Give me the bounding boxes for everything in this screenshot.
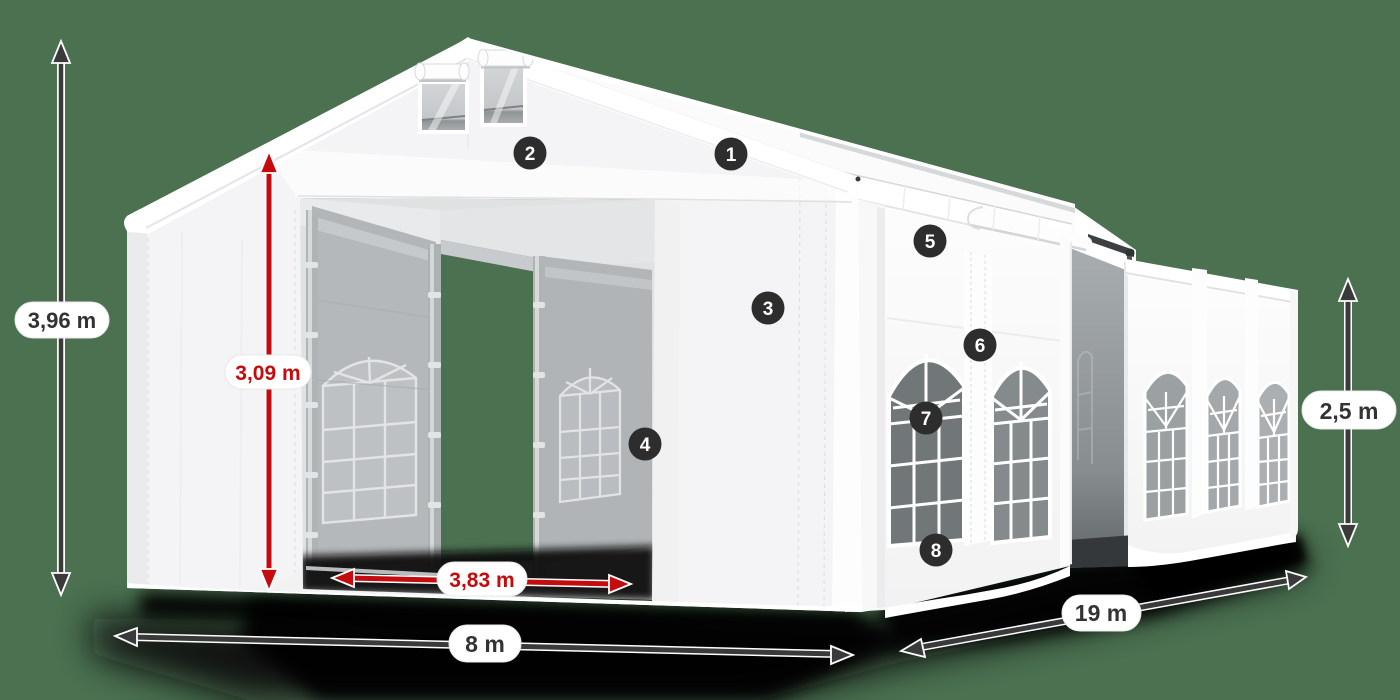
svg-text:8: 8 xyxy=(931,541,942,562)
svg-text:2: 2 xyxy=(525,144,536,165)
svg-text:2,5 m: 2,5 m xyxy=(1320,398,1379,424)
svg-text:3: 3 xyxy=(763,299,774,320)
svg-text:7: 7 xyxy=(921,409,932,430)
svg-text:3,96 m: 3,96 m xyxy=(28,308,97,333)
svg-text:3,83 m: 3,83 m xyxy=(449,569,514,592)
svg-text:5: 5 xyxy=(925,232,936,253)
svg-text:3,09 m: 3,09 m xyxy=(235,362,300,385)
svg-text:4: 4 xyxy=(640,435,651,456)
svg-text:19 m: 19 m xyxy=(1075,600,1127,626)
svg-text:1: 1 xyxy=(726,145,737,166)
svg-text:6: 6 xyxy=(975,336,986,357)
svg-text:8 m: 8 m xyxy=(465,631,505,657)
